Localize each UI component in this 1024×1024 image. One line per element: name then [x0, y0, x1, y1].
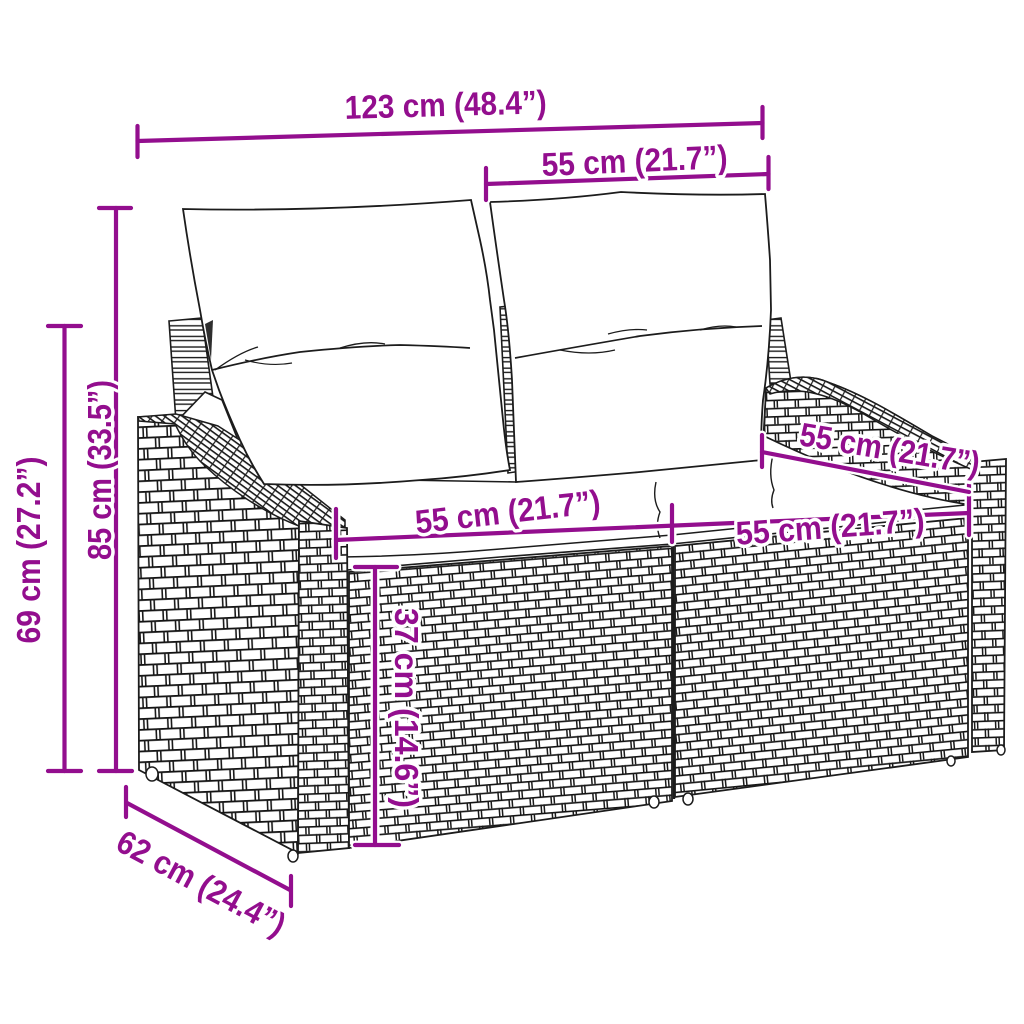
svg-text:85 cm (33.5”): 85 cm (33.5”) [81, 380, 118, 560]
svg-text:69 cm (27.2”): 69 cm (27.2”) [10, 457, 47, 644]
svg-text:37 cm (14.6”): 37 cm (14.6”) [388, 608, 425, 808]
svg-text:123 cm (48.4”): 123 cm (48.4”) [344, 83, 547, 126]
